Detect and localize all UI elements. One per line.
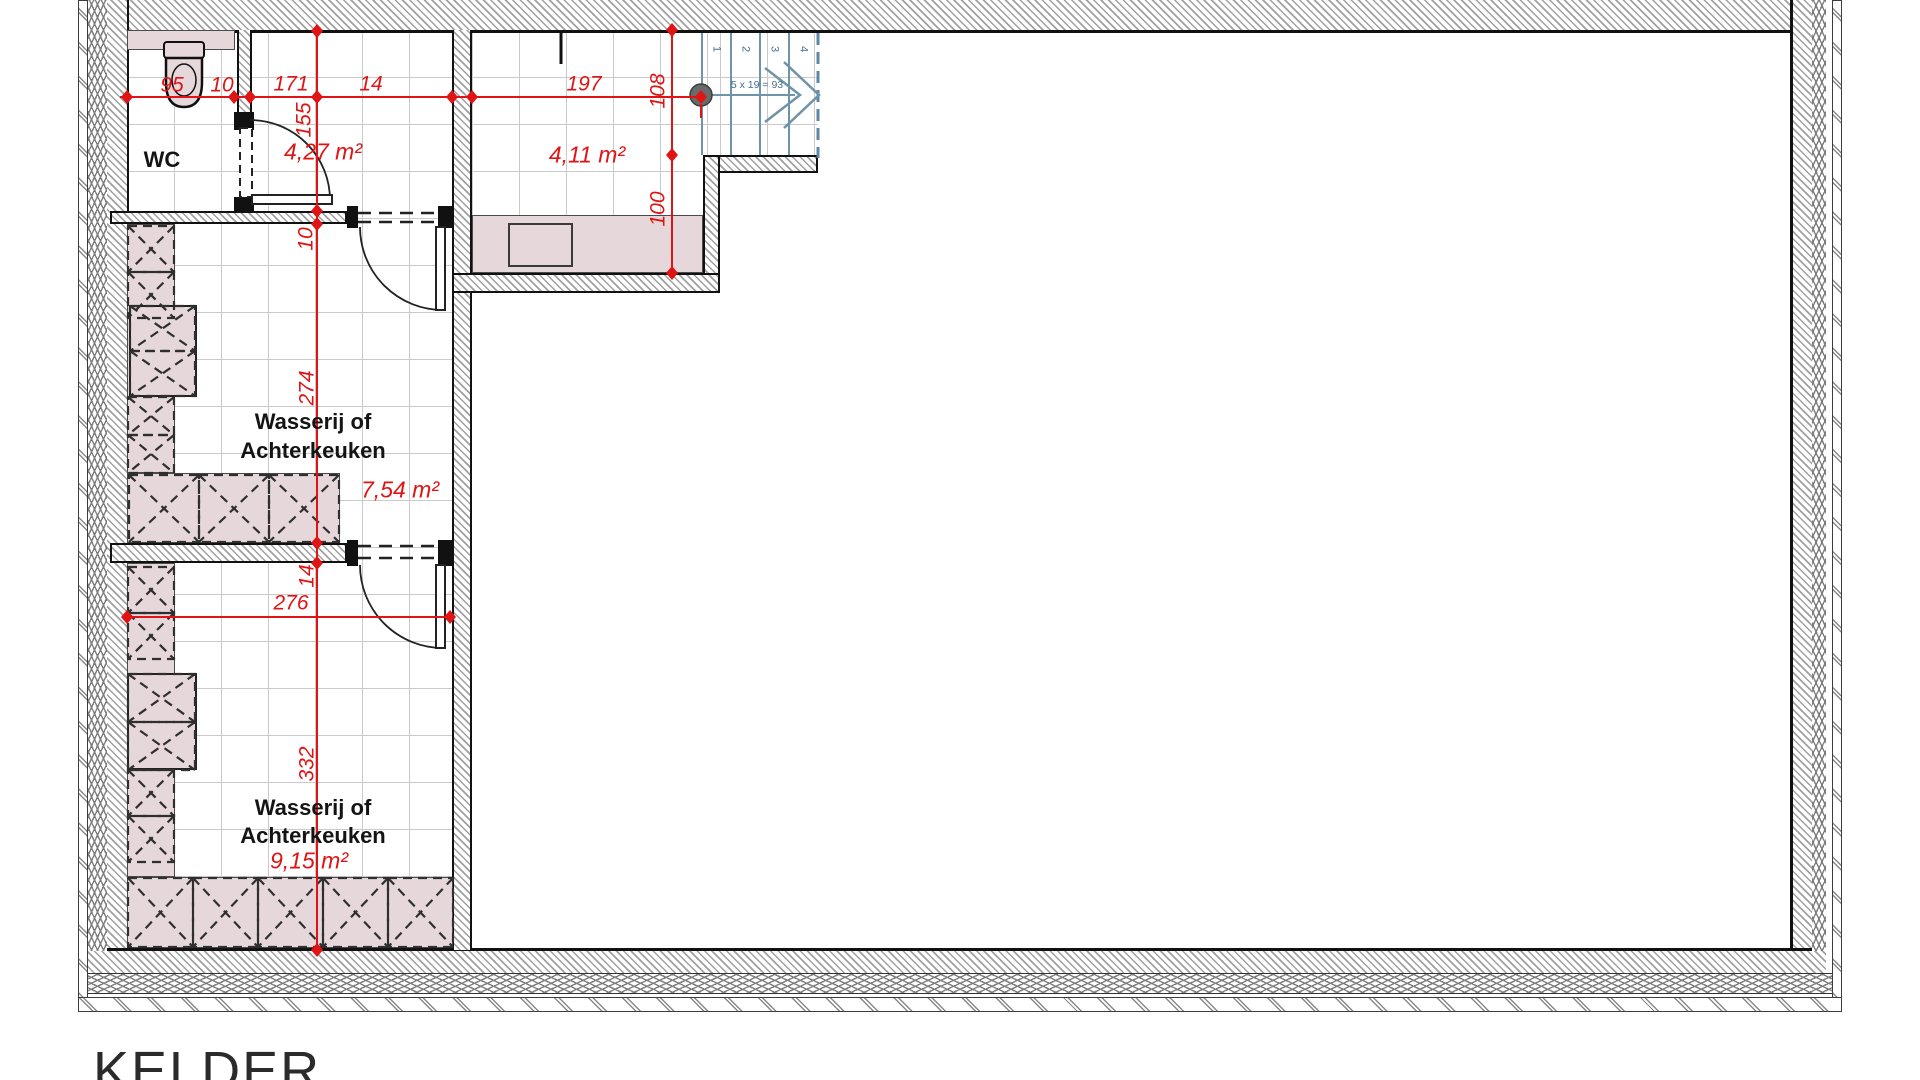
- drawing-title: KELDER: [93, 1044, 321, 1080]
- area-label-laundry-lower: 9,15 m²: [270, 850, 348, 873]
- stair-formula-label: 5 x 19 = 93: [731, 80, 783, 91]
- dim-wall-d: 14: [297, 564, 318, 587]
- dim-wc-wall: 10: [210, 75, 233, 96]
- dim-wall-b: 14: [359, 74, 382, 95]
- room-label-laundry-lower-line1: Wasserij of: [255, 797, 372, 819]
- stair-step-number-1: 1: [711, 46, 722, 52]
- dim-hall-depth: 155: [294, 102, 315, 137]
- dim-wc-width: 95: [160, 75, 183, 96]
- area-label-landing: 4,11 m²: [549, 144, 625, 167]
- dim-landing-width: 197: [566, 74, 601, 95]
- room-label-laundry-upper-line2: Achterkeuken: [240, 440, 386, 462]
- dim-laundry-upper-depth: 274: [297, 370, 318, 405]
- dim-stair-upper-run: 108: [648, 73, 669, 108]
- stair-step-number-3: 3: [769, 46, 780, 52]
- area-label-hall: 4,27 m²: [284, 141, 362, 164]
- dim-hall-width: 171: [273, 74, 308, 95]
- dim-laundry-lower-depth: 332: [297, 746, 318, 781]
- dim-laundry-lower-width: 276: [273, 593, 308, 614]
- room-label-laundry-upper-line1: Wasserij of: [255, 411, 372, 433]
- stair-step-number-2: 2: [740, 46, 751, 52]
- room-label-wc: WC: [144, 149, 181, 171]
- floor-plan-kelder: WC 4,27 m² 4,11 m² Wasserij of Achterkeu…: [0, 0, 1920, 1080]
- dim-wall-c: 10: [296, 227, 317, 250]
- area-label-laundry-upper: 7,54 m²: [361, 479, 439, 502]
- stair-step-number-4: 4: [798, 46, 809, 52]
- room-label-laundry-lower-line2: Achterkeuken: [240, 825, 386, 847]
- dim-stair-lower-run: 100: [648, 191, 669, 226]
